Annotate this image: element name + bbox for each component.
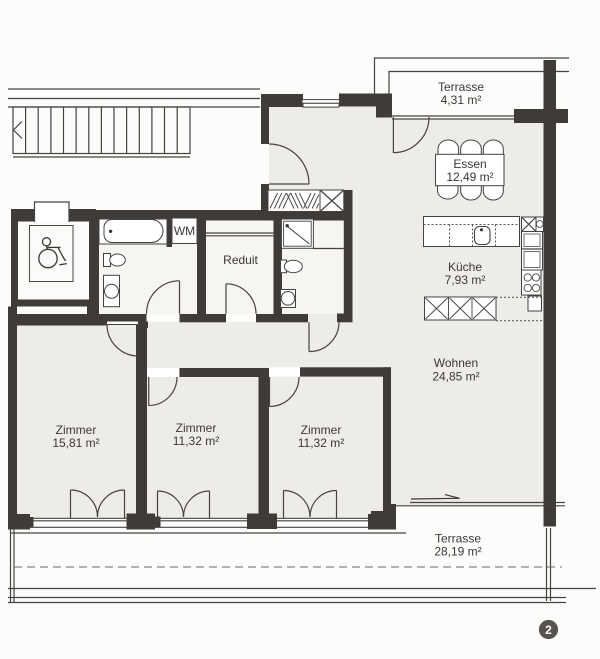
svg-text:11,32 m²: 11,32 m² xyxy=(173,434,219,448)
svg-text:4,31 m²: 4,31 m² xyxy=(441,93,482,107)
svg-text:Reduit: Reduit xyxy=(223,253,258,267)
svg-text:Wohnen: Wohnen xyxy=(434,356,478,370)
svg-text:12,49 m²: 12,49 m² xyxy=(446,170,493,184)
svg-text:Terrasse: Terrasse xyxy=(435,532,481,546)
svg-text:Zimmer: Zimmer xyxy=(301,423,342,437)
svg-text:Zimmer: Zimmer xyxy=(176,421,217,435)
svg-text:Zimmer: Zimmer xyxy=(56,423,97,437)
svg-text:28,19 m²: 28,19 m² xyxy=(434,545,481,559)
svg-text:11,32 m²: 11,32 m² xyxy=(298,436,344,450)
svg-text:Terrasse: Terrasse xyxy=(438,80,484,94)
svg-text:Essen: Essen xyxy=(453,157,486,171)
svg-text:24,85 m²: 24,85 m² xyxy=(432,370,479,384)
svg-text:15,81 m²: 15,81 m² xyxy=(52,436,99,450)
svg-text:Küche: Küche xyxy=(448,260,482,274)
svg-text:7,93 m²: 7,93 m² xyxy=(445,273,486,287)
svg-text:WM: WM xyxy=(174,224,195,238)
svg-text:2: 2 xyxy=(545,623,552,637)
